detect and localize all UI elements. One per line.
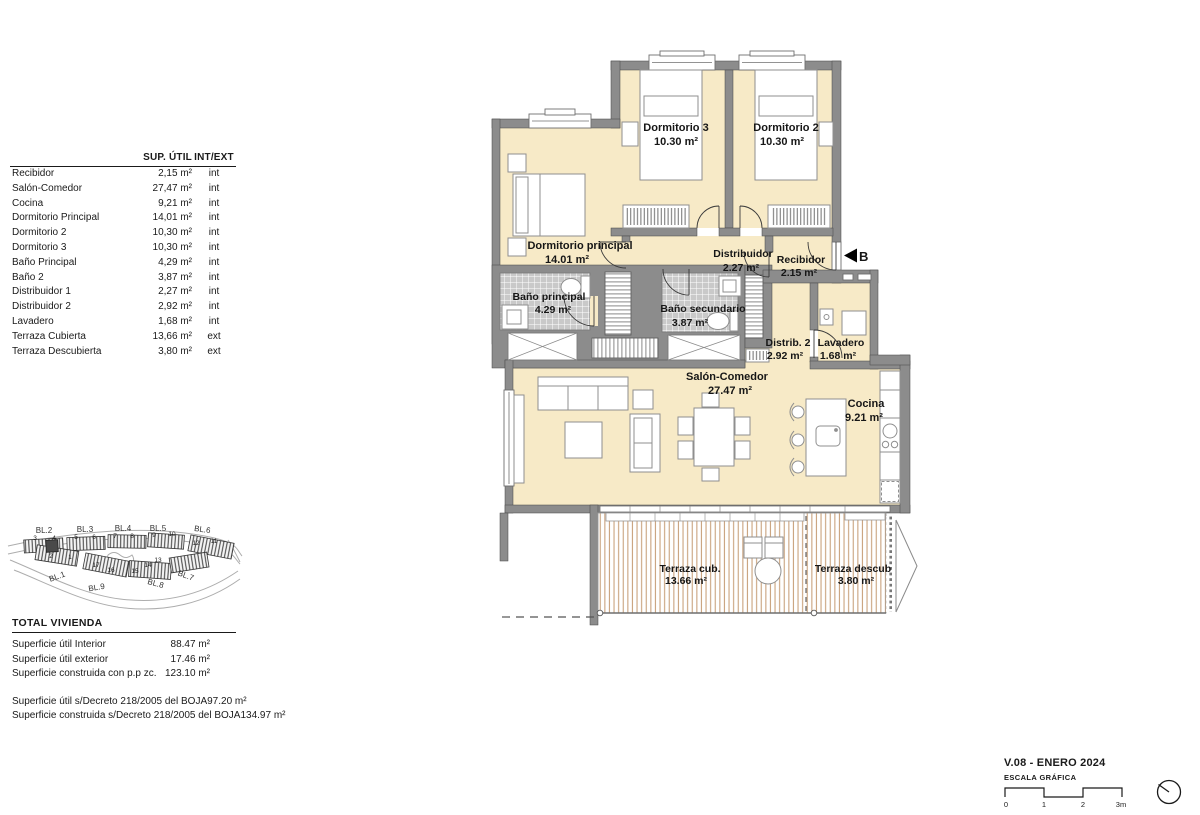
chair [735, 441, 750, 459]
nightstand [819, 122, 833, 146]
room-area: 9.21 m² [845, 412, 883, 424]
chair [678, 417, 693, 435]
terrace-ramp [896, 520, 917, 612]
room-label: Baño principal [513, 291, 586, 303]
scale-tick: 3m [1116, 800, 1126, 809]
svg-text:13: 13 [154, 557, 162, 564]
nightstand [508, 154, 526, 172]
stool [792, 406, 804, 418]
room-label: Dormitorio principal [527, 240, 632, 252]
svg-text:12: 12 [192, 540, 200, 547]
window-sill [750, 51, 794, 56]
terrace-chair [744, 537, 762, 558]
sink-basin [723, 280, 736, 292]
vent [858, 274, 871, 280]
nightstand [622, 122, 638, 146]
entrance-label: B [859, 249, 868, 264]
wall [505, 360, 513, 390]
tv-bench [514, 395, 524, 483]
terrace-table [755, 558, 781, 584]
svg-text:3: 3 [33, 535, 37, 542]
room-area: 27.47 m² [708, 385, 752, 397]
svg-text:5: 5 [74, 534, 78, 541]
wall [611, 61, 620, 128]
scale-bar-shape [1005, 788, 1122, 797]
svg-text:14: 14 [144, 562, 152, 569]
wall [719, 228, 740, 236]
wall [870, 270, 878, 369]
wall [590, 505, 598, 625]
svg-text:17: 17 [92, 562, 100, 569]
room-label: Terraza cub. [659, 563, 720, 575]
room-area: 3.80 m² [838, 575, 875, 587]
room-area: 10.30 m² [760, 136, 804, 148]
svg-text:1: 1 [68, 554, 72, 561]
toilet [707, 313, 729, 330]
svg-text:6: 6 [92, 534, 96, 541]
room-label: Recibidor [777, 254, 825, 266]
coffee-table [565, 422, 602, 458]
hob-burner [882, 441, 888, 447]
hob-burner [891, 441, 897, 447]
bed-pillow [759, 96, 813, 116]
room-area: 3.87 m² [672, 317, 709, 329]
block-label: BL.2 [36, 526, 53, 535]
bed-pillow [644, 96, 698, 116]
wall [762, 228, 833, 236]
room-label: Baño secundario [660, 303, 745, 315]
scale-tick: 1 [1042, 800, 1046, 809]
scale-tick: 2 [1081, 800, 1085, 809]
washer [842, 311, 866, 335]
stool [792, 434, 804, 446]
wall [900, 355, 910, 513]
room-label: Salón-Comedor [686, 371, 769, 383]
block-label: BL.9 [88, 582, 106, 594]
svg-text:2: 2 [49, 553, 53, 560]
block-label: BL.4 [115, 524, 132, 533]
wall [870, 355, 910, 365]
room-area: 2.15 m² [781, 267, 818, 279]
room-area: 13.66 m² [665, 575, 708, 587]
svg-text:10: 10 [168, 531, 176, 538]
wall [500, 513, 508, 561]
room-label: Lavadero [818, 337, 865, 349]
dining-table [694, 408, 734, 466]
shaft-vertical [605, 272, 631, 335]
bed-pillow [516, 177, 528, 233]
chair [702, 468, 719, 481]
wall [611, 61, 841, 70]
sofa [538, 377, 628, 410]
window-sill [660, 51, 704, 56]
side-table [633, 390, 653, 409]
railing-post [811, 610, 817, 616]
chair [678, 441, 693, 459]
shaft-horizontal [592, 338, 658, 358]
room-label: Distribuidor [713, 248, 773, 260]
block-label: BL.1 [48, 569, 67, 583]
wall [611, 228, 697, 236]
block-label: BL.3 [77, 525, 94, 534]
room-area: 1.68 m² [820, 350, 857, 362]
building [169, 552, 209, 573]
terrace-chair [765, 537, 783, 558]
svg-text:8: 8 [130, 533, 134, 540]
room-label: Terraza descub [815, 563, 891, 575]
site-plan-sketch: BL.2 BL.3 BL.4 BL.5 BL.6 BL.1 BL.9 BL.8 … [8, 524, 242, 609]
room-label: Dormitorio 2 [753, 122, 818, 134]
wall [832, 61, 841, 242]
svg-text:11: 11 [211, 538, 218, 545]
room-label: Cocina [848, 398, 886, 410]
railing-post [597, 610, 603, 616]
entrance-opening [832, 242, 841, 270]
building [67, 536, 105, 550]
wall [810, 283, 818, 330]
room-area: 14.01 m² [545, 254, 589, 266]
entrance-marker: B [844, 249, 868, 265]
scale-tick: 0 [1004, 800, 1008, 809]
block-label: BL.6 [194, 524, 212, 535]
chair [735, 417, 750, 435]
svg-text:9: 9 [152, 532, 156, 539]
scale-bar: 0 1 2 3m [1004, 788, 1126, 809]
svg-text:4: 4 [52, 535, 56, 542]
floor-plan-canvas: B Dormitorio 3 10.30 m² Dormitorio 2 10.… [0, 0, 1200, 815]
room-area: 4.29 m² [535, 304, 572, 316]
svg-text:15: 15 [131, 568, 139, 575]
svg-text:16: 16 [107, 567, 115, 574]
room-label: Dormitorio 3 [643, 122, 708, 134]
room-label: Distrib. 2 [766, 337, 811, 349]
entrance-arrow-icon [844, 249, 857, 263]
stool [792, 461, 804, 473]
compass-needle-icon [1159, 785, 1170, 793]
laundry-sink [820, 309, 833, 325]
terrace-sill [845, 513, 885, 520]
north-indicator [1158, 781, 1181, 804]
window-sill [545, 109, 575, 115]
room-area: 10.30 m² [654, 136, 698, 148]
sink-basin [507, 310, 521, 324]
wall [505, 360, 745, 368]
sliding-door-band [600, 506, 890, 512]
wardrobe [745, 275, 763, 338]
block-label: BL.7 [177, 569, 196, 583]
wall [725, 70, 733, 228]
room-area: 2.27 m² [723, 262, 760, 274]
nightstand [508, 238, 526, 256]
hob-burner [883, 424, 897, 438]
room-area: 2.92 m² [767, 350, 804, 362]
vent [843, 274, 853, 280]
svg-text:7: 7 [113, 533, 117, 540]
